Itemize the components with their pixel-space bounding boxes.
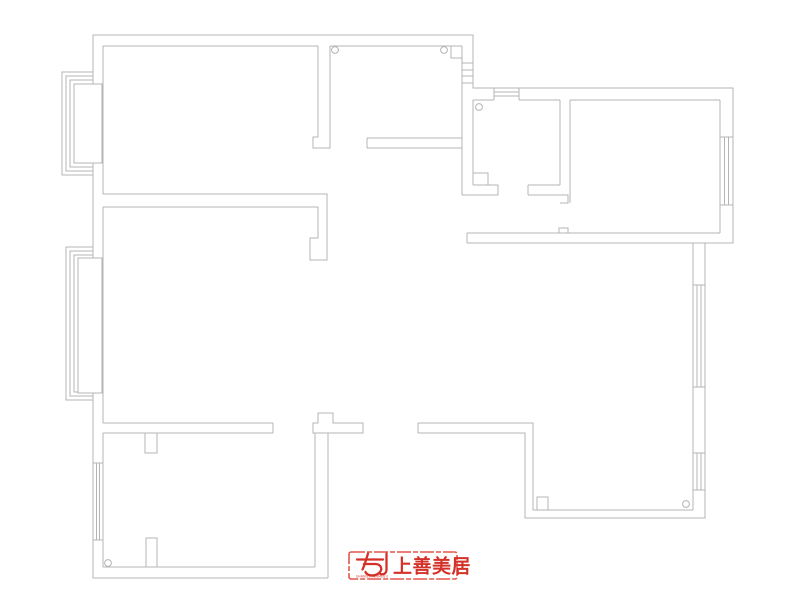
- circle-marker: [441, 47, 448, 54]
- hallway-long-wall: [467, 233, 720, 243]
- floor-plan-page: SHANGSHANMEIJU 上善美居: [0, 0, 800, 611]
- window-symbol-right-2: [693, 453, 705, 490]
- window-symbol-right-1: [693, 285, 705, 387]
- kitchen-bottom-wall: [367, 138, 462, 148]
- room-a-b-divider: [103, 194, 327, 260]
- circle-marker: [105, 560, 112, 567]
- living-room-column: [537, 497, 548, 510]
- bathroom-bottom-wall-2: [528, 100, 570, 203]
- wall-lines: [93, 35, 733, 578]
- circle-markers: [105, 47, 690, 567]
- kitchen-corner-square: [451, 46, 462, 58]
- brand-logo: SHANGSHANMEIJU 上善美居: [349, 552, 471, 579]
- bay-window-top: [62, 72, 102, 175]
- bay-window-sash: [74, 84, 102, 163]
- window-symbol-bathroom-top: [494, 88, 519, 100]
- closet-stub-bottom: [146, 538, 157, 567]
- circle-marker: [476, 104, 483, 111]
- circle-marker: [683, 501, 690, 508]
- kitchen-bathroom-wall: [462, 46, 473, 195]
- living-room-inner-walls: [418, 423, 693, 510]
- logo-monogram-icon: [357, 554, 387, 576]
- logo-subtext: SHANGSHANMEIJU: [356, 575, 389, 579]
- room-a-right-wall: [313, 46, 330, 148]
- circle-marker: [332, 47, 339, 54]
- bathroom-bottom-wall-1: [462, 173, 498, 195]
- closet-stub-top: [145, 433, 157, 453]
- window-symbol-kitchen-wall: [462, 63, 473, 83]
- bay-window-sash: [78, 258, 102, 393]
- exterior-wall-outline: [93, 35, 733, 578]
- window-symbols: [93, 63, 733, 540]
- floor-plan-drawing: SHANGSHANMEIJU 上善美居: [0, 0, 800, 611]
- brand-name-text: 上善美居: [393, 555, 471, 578]
- central-wall-cap: [313, 413, 363, 433]
- window-symbol-room-e: [720, 137, 733, 205]
- hallway-wall-tab: [559, 228, 568, 233]
- bay-window-middle: [66, 247, 102, 400]
- bottom-room-top-wall: [103, 423, 273, 433]
- window-symbol-left-bottom: [93, 463, 103, 540]
